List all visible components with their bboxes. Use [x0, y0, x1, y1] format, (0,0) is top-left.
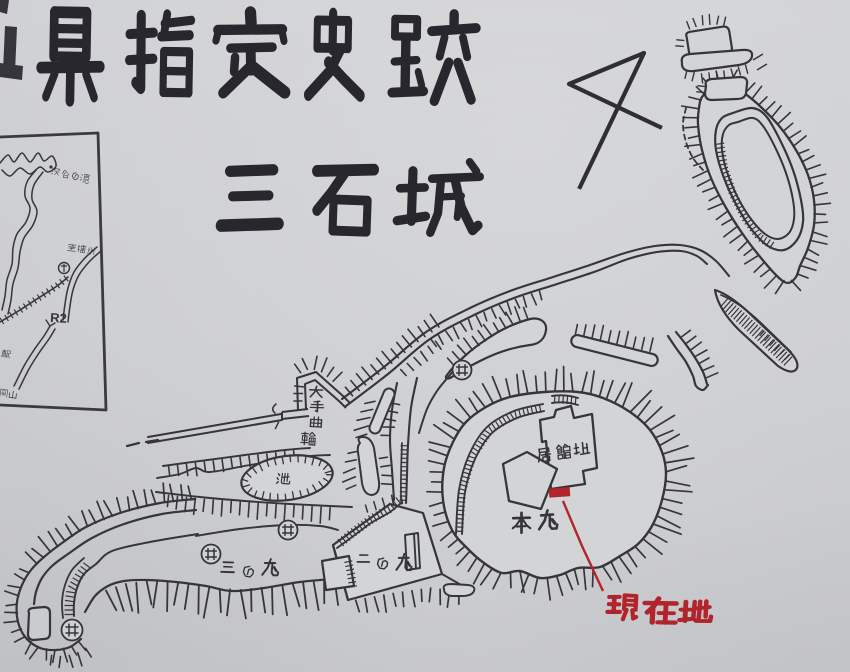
svg-text:R2: R2 [50, 310, 67, 326]
